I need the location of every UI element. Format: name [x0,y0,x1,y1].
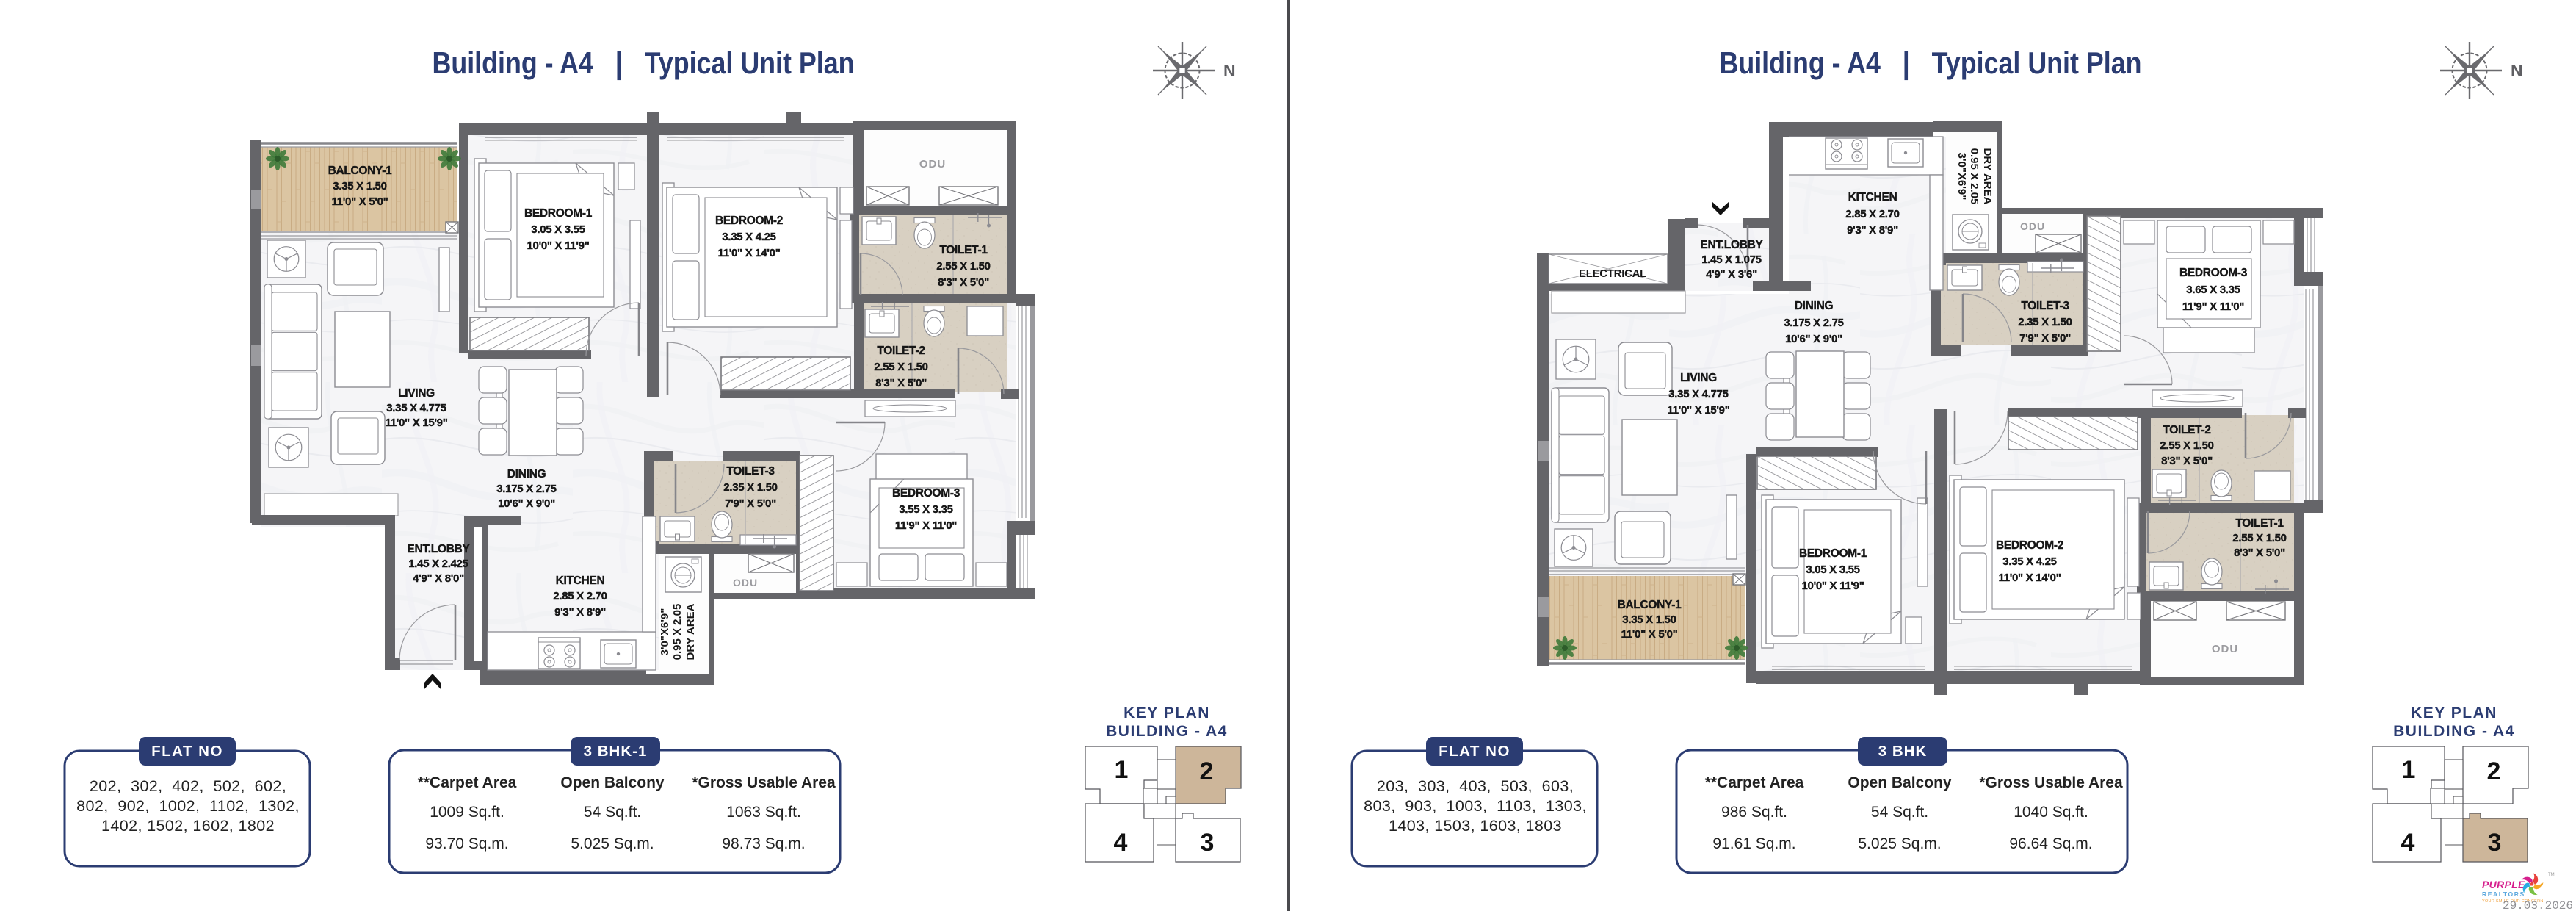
svg-text:93.70 Sq.m.: 93.70 Sq.m. [425,835,508,852]
svg-text:DRY AREA: DRY AREA [1981,148,1994,205]
svg-text:ELECTRICAL: ELECTRICAL [1579,267,1646,280]
svg-text:3.175 X 2.75: 3.175 X 2.75 [496,483,556,495]
svg-text:TOILET-2: TOILET-2 [2163,424,2210,436]
svg-text:ODU: ODU [2212,643,2238,655]
svg-text:8'3" X 5'0": 8'3" X 5'0" [938,276,989,289]
svg-text:2.85 X 2.70: 2.85 X 2.70 [553,590,607,602]
svg-text:FLAT NO: FLAT NO [1439,743,1510,760]
svg-text:BEDROOM-3: BEDROOM-3 [892,487,960,500]
svg-text:10'0" X 11'9": 10'0" X 11'9" [1801,580,1864,592]
svg-text:LIVING: LIVING [398,387,435,400]
svg-text:2: 2 [2487,757,2501,785]
svg-text:203, 303, 403, 503, 603,: 203, 303, 403, 503, 603, [1377,777,1574,795]
svg-text:3.65 X 3.35: 3.65 X 3.35 [2186,284,2240,296]
svg-text:FLAT NO: FLAT NO [151,743,223,760]
svg-text:2.35 X 1.50: 2.35 X 1.50 [723,481,777,494]
svg-text:1: 1 [1115,756,1129,784]
svg-text:91.61 Sq.m.: 91.61 Sq.m. [1712,835,1795,852]
svg-text:BUILDING - A4: BUILDING - A4 [1106,723,1228,740]
svg-text:TOILET-3: TOILET-3 [726,465,775,478]
svg-text:4'9" X 8'0": 4'9" X 8'0" [413,572,464,585]
svg-text:29.03.2026: 29.03.2026 [2503,899,2573,911]
svg-text:DINING: DINING [507,468,546,480]
svg-text:3.55 X 3.35: 3.55 X 3.35 [899,503,952,516]
svg-text:KITCHEN: KITCHEN [1848,191,1897,204]
svg-text:3 BHK-1: 3 BHK-1 [584,743,648,760]
svg-text:**Carpet Area: **Carpet Area [1705,774,1804,791]
svg-text:5.025 Sq.m.: 5.025 Sq.m. [1858,835,1941,852]
svg-text:3 BHK: 3 BHK [1878,743,1928,760]
svg-text:11'9" X 11'0": 11'9" X 11'0" [895,519,957,532]
svg-text:1403, 1503, 1603, 1803: 1403, 1503, 1603, 1803 [1389,817,1562,835]
svg-text:ODU: ODU [919,158,946,170]
svg-text:2.35 X 1.50: 2.35 X 1.50 [2018,316,2072,328]
svg-text:2.55 X 1.50: 2.55 X 1.50 [874,361,927,373]
svg-text:1040 Sq.ft.: 1040 Sq.ft. [2014,804,2088,821]
svg-text:2.85 X 2.70: 2.85 X 2.70 [1845,208,1899,220]
svg-text:3.05 X 3.55: 3.05 X 3.55 [1806,563,1859,576]
svg-text:KEY PLAN: KEY PLAN [1124,705,1210,721]
svg-text:1402, 1502, 1602, 1802: 1402, 1502, 1602, 1802 [101,817,275,835]
svg-text:N: N [2511,61,2523,80]
svg-text:1009 Sq.ft.: 1009 Sq.ft. [430,804,504,821]
svg-text:ENT.LOBBY: ENT.LOBBY [1700,239,1763,251]
svg-text:11'0" X 15'9": 11'0" X 15'9" [1667,404,1729,417]
svg-text:8'3" X 5'0": 8'3" X 5'0" [2161,455,2213,467]
svg-text:TOILET-2: TOILET-2 [877,345,925,357]
svg-text:10'6" X 9'0": 10'6" X 9'0" [1785,333,1842,345]
svg-text:BUILDING - A4: BUILDING - A4 [2393,723,2515,740]
svg-text:10'0" X 11'9": 10'0" X 11'9" [527,240,589,252]
svg-text:2.55 X 1.50: 2.55 X 1.50 [2232,532,2286,544]
svg-text:7'9" X 5'0": 7'9" X 5'0" [725,497,776,510]
svg-text:3.35 X 4.775: 3.35 X 4.775 [1668,388,1728,400]
svg-text:11'0" X 14'0": 11'0" X 14'0" [717,247,780,259]
svg-text:TM: TM [2548,873,2555,877]
svg-text:0.95 X 2.05: 0.95 X 2.05 [671,604,684,660]
svg-text:11'0" X 14'0": 11'0" X 14'0" [1998,572,2061,584]
svg-text:KEY PLAN: KEY PLAN [2411,705,2497,721]
svg-text:3'0"X6'9": 3'0"X6'9" [1955,153,1968,201]
svg-text:54 Sq.ft.: 54 Sq.ft. [584,804,641,821]
svg-text:BALCONY-1: BALCONY-1 [1618,599,1682,611]
svg-text:3.35 X 4.775: 3.35 X 4.775 [386,402,446,414]
svg-text:3.35 X 1.50: 3.35 X 1.50 [333,180,386,192]
svg-text:9'3" X 8'9": 9'3" X 8'9" [1847,224,1898,237]
svg-text:DRY AREA: DRY AREA [684,603,697,660]
svg-text:ODU: ODU [2020,220,2045,232]
svg-text:PURPLE: PURPLE [2482,879,2525,890]
svg-text:TOILET-3: TOILET-3 [2021,300,2069,312]
svg-text:TOILET-1: TOILET-1 [2235,517,2284,530]
svg-text:1063 Sq.ft.: 1063 Sq.ft. [726,804,801,821]
svg-text:1.45 X 1.075: 1.45 X 1.075 [1701,253,1761,266]
svg-text:BEDROOM-2: BEDROOM-2 [715,215,783,227]
svg-text:4: 4 [2401,829,2415,857]
svg-text:*Gross Usable Area: *Gross Usable Area [1979,774,2123,791]
svg-text:Building - A4 | Typical Un: Building - A4 | Typical Unit Plan [433,46,855,81]
svg-text:4'9" X 3'6": 4'9" X 3'6" [1706,268,1757,281]
svg-text:5.025 Sq.m.: 5.025 Sq.m. [571,835,654,852]
svg-text:3.35 X 4.25: 3.35 X 4.25 [2002,555,2056,568]
svg-text:1.45 X 2.425: 1.45 X 2.425 [408,558,468,570]
svg-text:BALCONY-1: BALCONY-1 [328,165,393,177]
svg-text:2: 2 [1200,757,1214,785]
svg-text:3: 3 [1201,829,1215,857]
svg-text:Building - A4 | Typical Un: Building - A4 | Typical Unit Plan [1720,46,2142,81]
svg-text:N: N [1223,61,1236,80]
svg-text:11'0" X 15'9": 11'0" X 15'9" [385,417,447,429]
svg-text:BEDROOM-2: BEDROOM-2 [1996,539,2063,552]
svg-text:LIVING: LIVING [1680,372,1717,384]
svg-text:Open Balcony: Open Balcony [1848,774,1952,791]
svg-text:Open Balcony: Open Balcony [560,774,665,791]
svg-text:TOILET-1: TOILET-1 [939,244,988,256]
svg-text:1: 1 [2402,756,2416,784]
svg-text:3.175 X 2.75: 3.175 X 2.75 [1784,317,1843,329]
svg-text:8'3" X 5'0": 8'3" X 5'0" [2234,547,2285,559]
svg-text:11'0" X 5'0": 11'0" X 5'0" [332,195,388,208]
svg-text:202, 302, 402, 502, 602,: 202, 302, 402, 502, 602, [90,777,286,795]
svg-text:3'0"X6'9": 3'0"X6'9" [659,608,671,656]
svg-text:98.73 Sq.m.: 98.73 Sq.m. [722,835,805,852]
svg-text:54 Sq.ft.: 54 Sq.ft. [1871,804,1928,821]
svg-text:**Carpet Area: **Carpet Area [418,774,517,791]
svg-text:BEDROOM-1: BEDROOM-1 [524,207,593,220]
svg-text:BEDROOM-1: BEDROOM-1 [1799,547,1867,560]
svg-text:3.35 X 4.25: 3.35 X 4.25 [722,231,775,243]
svg-text:9'3" X 8'9": 9'3" X 8'9" [554,606,606,619]
svg-text:ODU: ODU [733,577,758,588]
svg-text:*Gross Usable Area: *Gross Usable Area [692,774,836,791]
svg-text:4: 4 [1114,829,1128,857]
svg-text:802, 902, 1002, 1102, 1302: 802, 902, 1002, 1102, 1302, [76,797,300,815]
svg-text:KITCHEN: KITCHEN [556,575,605,587]
svg-text:11'9" X 11'0": 11'9" X 11'0" [2182,300,2244,313]
svg-text:8'3" X 5'0": 8'3" X 5'0" [875,377,927,389]
svg-text:ENT.LOBBY: ENT.LOBBY [407,543,470,555]
svg-text:REALTORS: REALTORS [2482,890,2525,898]
svg-text:803, 903, 1003, 1103, 1303: 803, 903, 1003, 1103, 1303, [1364,797,1587,815]
svg-text:96.64 Sq.m.: 96.64 Sq.m. [2009,835,2092,852]
svg-text:DINING: DINING [1795,300,1834,312]
svg-text:3.35 X 1.50: 3.35 X 1.50 [1622,613,1676,626]
svg-text:BEDROOM-3: BEDROOM-3 [2179,267,2248,279]
svg-text:3.05 X 3.55: 3.05 X 3.55 [531,223,585,236]
svg-text:0.95 X 2.05: 0.95 X 2.05 [1968,148,1980,205]
svg-text:11'0" X 5'0": 11'0" X 5'0" [1621,628,1678,641]
svg-text:7'9" X 5'0": 7'9" X 5'0" [2019,332,2071,345]
svg-text:2.55 X 1.50: 2.55 X 1.50 [2160,439,2213,452]
svg-text:2.55 X 1.50: 2.55 X 1.50 [936,260,990,273]
svg-text:986 Sq.ft.: 986 Sq.ft. [1721,804,1787,821]
svg-text:10'6" X 9'0": 10'6" X 9'0" [498,497,555,510]
svg-text:3: 3 [2488,829,2502,857]
